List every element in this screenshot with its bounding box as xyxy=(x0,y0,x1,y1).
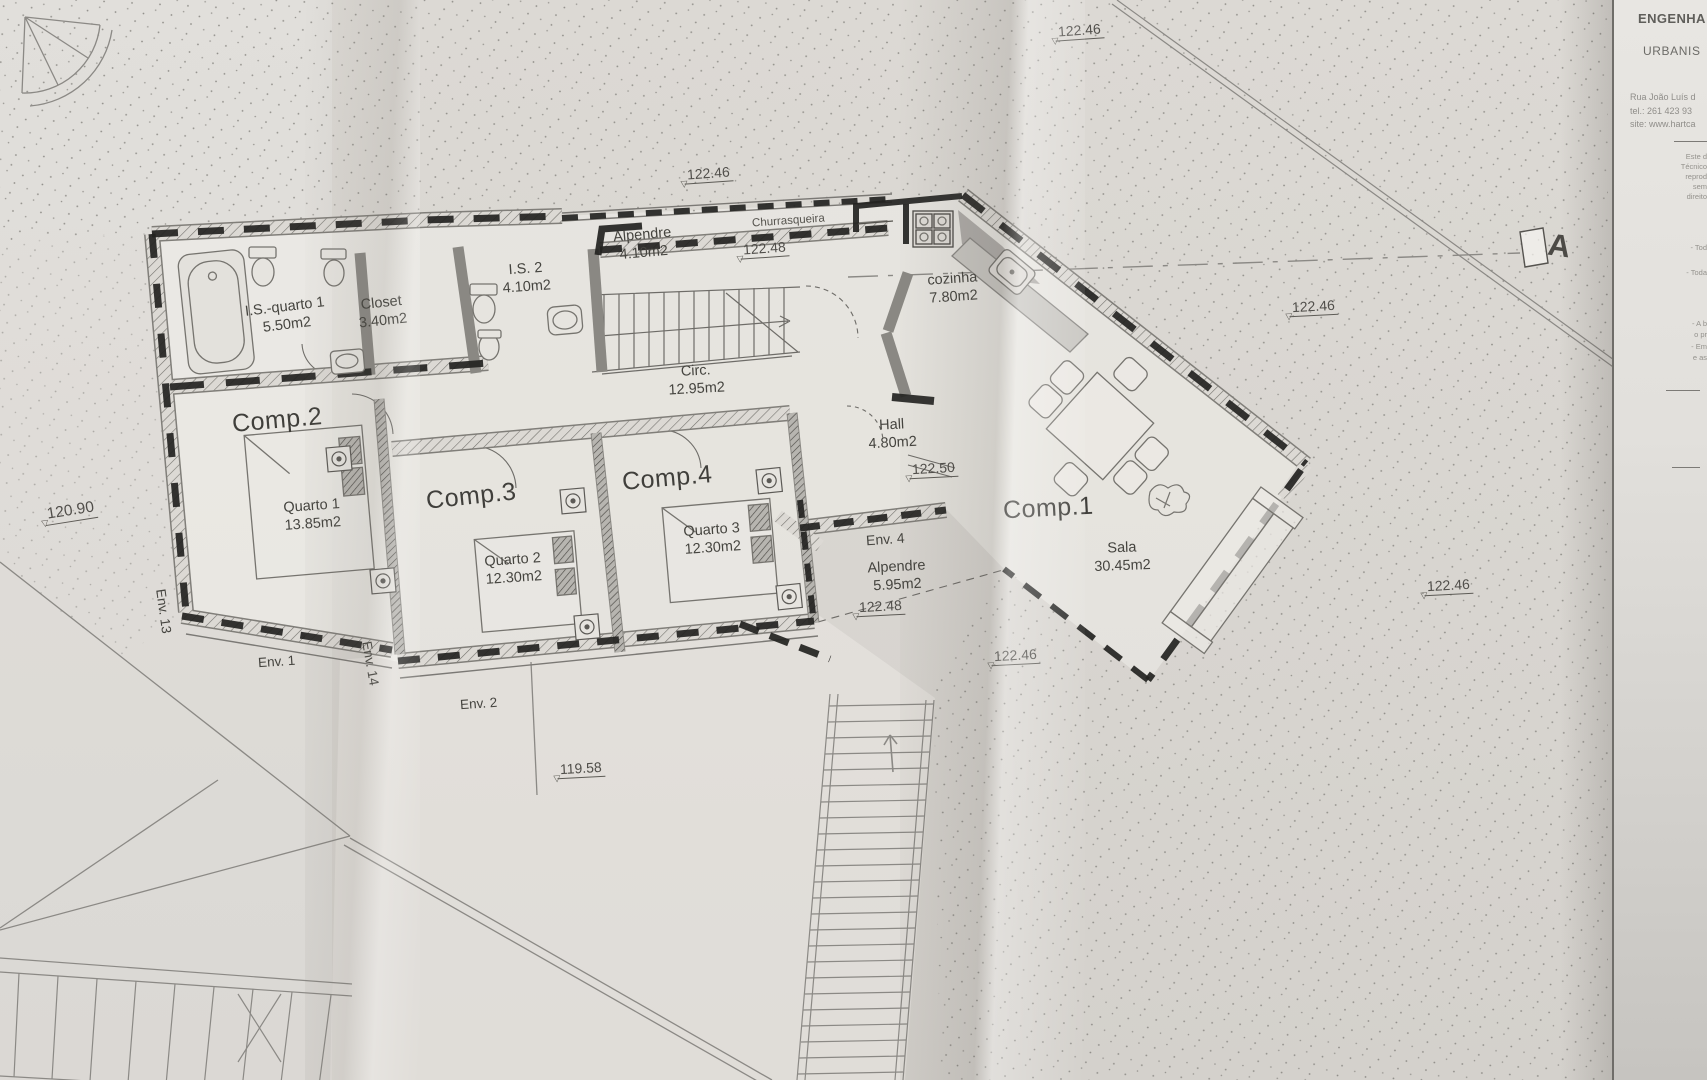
title-block-disclaimer-line: direito xyxy=(1652,192,1707,201)
title-block-divider xyxy=(1666,390,1700,391)
level-marker-below-env4: 122.46▽ xyxy=(991,646,1041,667)
title-block-disclaimer-line: Este d xyxy=(1652,152,1707,161)
title-block-heading: ENGENHA xyxy=(1638,11,1706,26)
room-label-circ: Circ.12.95m2 xyxy=(667,361,725,400)
level-marker-env4: 122.48▽ xyxy=(856,597,906,618)
room-label-cozinha: cozinha7.80m2 xyxy=(927,268,979,308)
level-marker-hall: 122.50▽ xyxy=(909,459,959,480)
title-block: ENGENHA URBANIS Rua João Luís d tel.: 26… xyxy=(1612,0,1707,1080)
room-label-quarto3: Quarto 312.30m2 xyxy=(683,519,742,559)
room-label-quarto2: Quarto 212.30m2 xyxy=(484,549,543,589)
exterior-stair-center xyxy=(797,694,934,1080)
level-marker-bottom-right: 122.46▽ xyxy=(1424,576,1474,597)
level-triangle-icon: ▽ xyxy=(1051,35,1059,46)
room-label-sala: Sala30.45m2 xyxy=(1093,538,1151,576)
title-block-note2: - A b xyxy=(1652,319,1707,328)
title-block-divider xyxy=(1672,467,1700,468)
bidet-icon xyxy=(321,249,346,286)
bathtub-icon xyxy=(177,249,255,375)
title-block-disclaimer-line: Técnico xyxy=(1652,162,1707,171)
level-triangle-icon: ▽ xyxy=(1420,590,1427,601)
level-marker-top-center: 122.46▽ xyxy=(1054,20,1104,41)
exterior-stair-left xyxy=(0,958,352,1080)
floorplan-photo: Comp.2 Comp.3 Comp.4 Comp.1 I.S.-quarto … xyxy=(0,0,1707,1080)
toilet-icon xyxy=(249,247,276,286)
level-triangle-icon: ▽ xyxy=(553,773,560,784)
level-marker-upper-mid: 122.46▽ xyxy=(683,163,733,184)
level-marker-alpendre: 122.48▽ xyxy=(739,238,789,259)
title-block-disclaimer-line: sem xyxy=(1652,182,1707,191)
level-triangle-icon: ▽ xyxy=(905,473,912,484)
level-triangle-icon: ▽ xyxy=(680,178,688,189)
level-triangle-icon: ▽ xyxy=(41,518,50,530)
sink-icon xyxy=(330,349,365,375)
bidet-icon xyxy=(478,330,501,360)
room-name-comp1: Comp.1 xyxy=(1002,492,1094,526)
toilet-icon xyxy=(470,284,497,323)
title-block-subheading: URBANIS xyxy=(1643,44,1701,58)
room-label-is2: I.S. 24.10m2 xyxy=(501,258,552,298)
stove-icon xyxy=(913,211,953,247)
room-label-hall: Hall4.80m2 xyxy=(867,415,917,454)
room-label-env4-alpendre: Alpendre5.95m2 xyxy=(867,557,927,596)
env1-label: Env. 1 xyxy=(258,653,296,671)
room-label-alpendre-top: Alpendre4.10m2 xyxy=(613,224,674,265)
level-triangle-icon: ▽ xyxy=(736,253,744,264)
title-block-divider xyxy=(1674,141,1707,142)
level-triangle-icon: ▽ xyxy=(852,611,859,622)
level-marker-right-mid: 122.46▽ xyxy=(1289,297,1339,318)
title-block-disclaimer-line: reprod xyxy=(1652,172,1707,181)
room-label-env4: Env. 4 xyxy=(865,530,905,549)
sink-icon xyxy=(547,305,583,336)
room-label-quarto1: Quarto 113.85m2 xyxy=(283,495,342,535)
title-block-note2: e as xyxy=(1652,353,1707,362)
env2-label: Env. 2 xyxy=(460,695,498,713)
title-block-address: Rua João Luís d xyxy=(1630,92,1696,102)
title-block-note2: o pr xyxy=(1652,330,1707,339)
title-block-phone: tel.: 261 423 93 xyxy=(1630,106,1692,116)
title-block-note2: - Em xyxy=(1652,342,1707,351)
title-block-website: site: www.hartca xyxy=(1630,119,1696,129)
level-triangle-icon: ▽ xyxy=(1285,311,1292,322)
plant-icon xyxy=(1149,485,1190,516)
level-marker-bottom: 119.58▽ xyxy=(557,759,606,779)
room-label-closet: Closet3.40m2 xyxy=(356,292,408,333)
title-block-note: - Toda xyxy=(1652,268,1707,277)
title-block-note: - Tod xyxy=(1652,243,1707,252)
floorplan-drawing xyxy=(0,0,1707,1080)
level-triangle-icon: ▽ xyxy=(987,660,994,671)
